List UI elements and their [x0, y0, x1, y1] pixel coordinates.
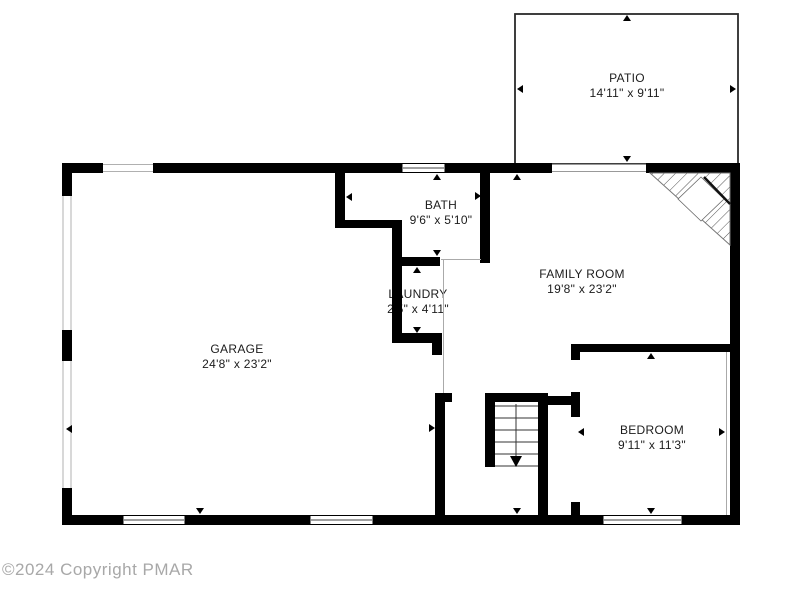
dimension-arrow-icon: [517, 85, 523, 93]
dimension-arrow-icon: [433, 174, 441, 180]
dimension-arrow-icon: [413, 267, 421, 273]
floorplan-canvas: PATIO 14'11" x 9'11" BATH 9'6" x 5'10" L…: [0, 0, 800, 600]
window: [603, 516, 682, 525]
dimension-arrow-icon: [719, 428, 725, 436]
dimension-arrow-icon: [513, 508, 521, 514]
stair-down-arrow-icon: [510, 456, 522, 467]
dimension-arrow-icon: [623, 156, 631, 162]
dimension-arrow-icon: [413, 327, 421, 333]
sliding-door: [552, 165, 646, 172]
window: [103, 165, 153, 172]
interior-walls: [335, 163, 740, 517]
dimension-arrow-icon: [196, 508, 204, 514]
window: [402, 164, 445, 173]
dimension-arrow-icon: [513, 174, 521, 180]
patio-outline: [515, 14, 738, 164]
dimension-arrow-icon: [730, 85, 736, 93]
dimension-arrow-icon: [429, 424, 435, 432]
staircase: [495, 404, 538, 467]
dimension-arrow-icon: [433, 250, 441, 256]
dimension-arrow-icon: [578, 428, 584, 436]
floorplan-drawing: [0, 0, 800, 600]
dimension-arrow-icon: [66, 425, 72, 433]
dimension-arrow-icon: [647, 508, 655, 514]
window: [310, 516, 373, 525]
dimension-arrow-icon: [623, 15, 631, 21]
dimension-arrow-icon: [346, 193, 352, 201]
copyright-text: ©2024 Copyright PMAR: [2, 560, 194, 580]
opening-lines: [441, 259, 727, 515]
window: [123, 516, 185, 525]
dimension-arrow-icon: [647, 353, 655, 359]
fireplace: [650, 173, 730, 245]
